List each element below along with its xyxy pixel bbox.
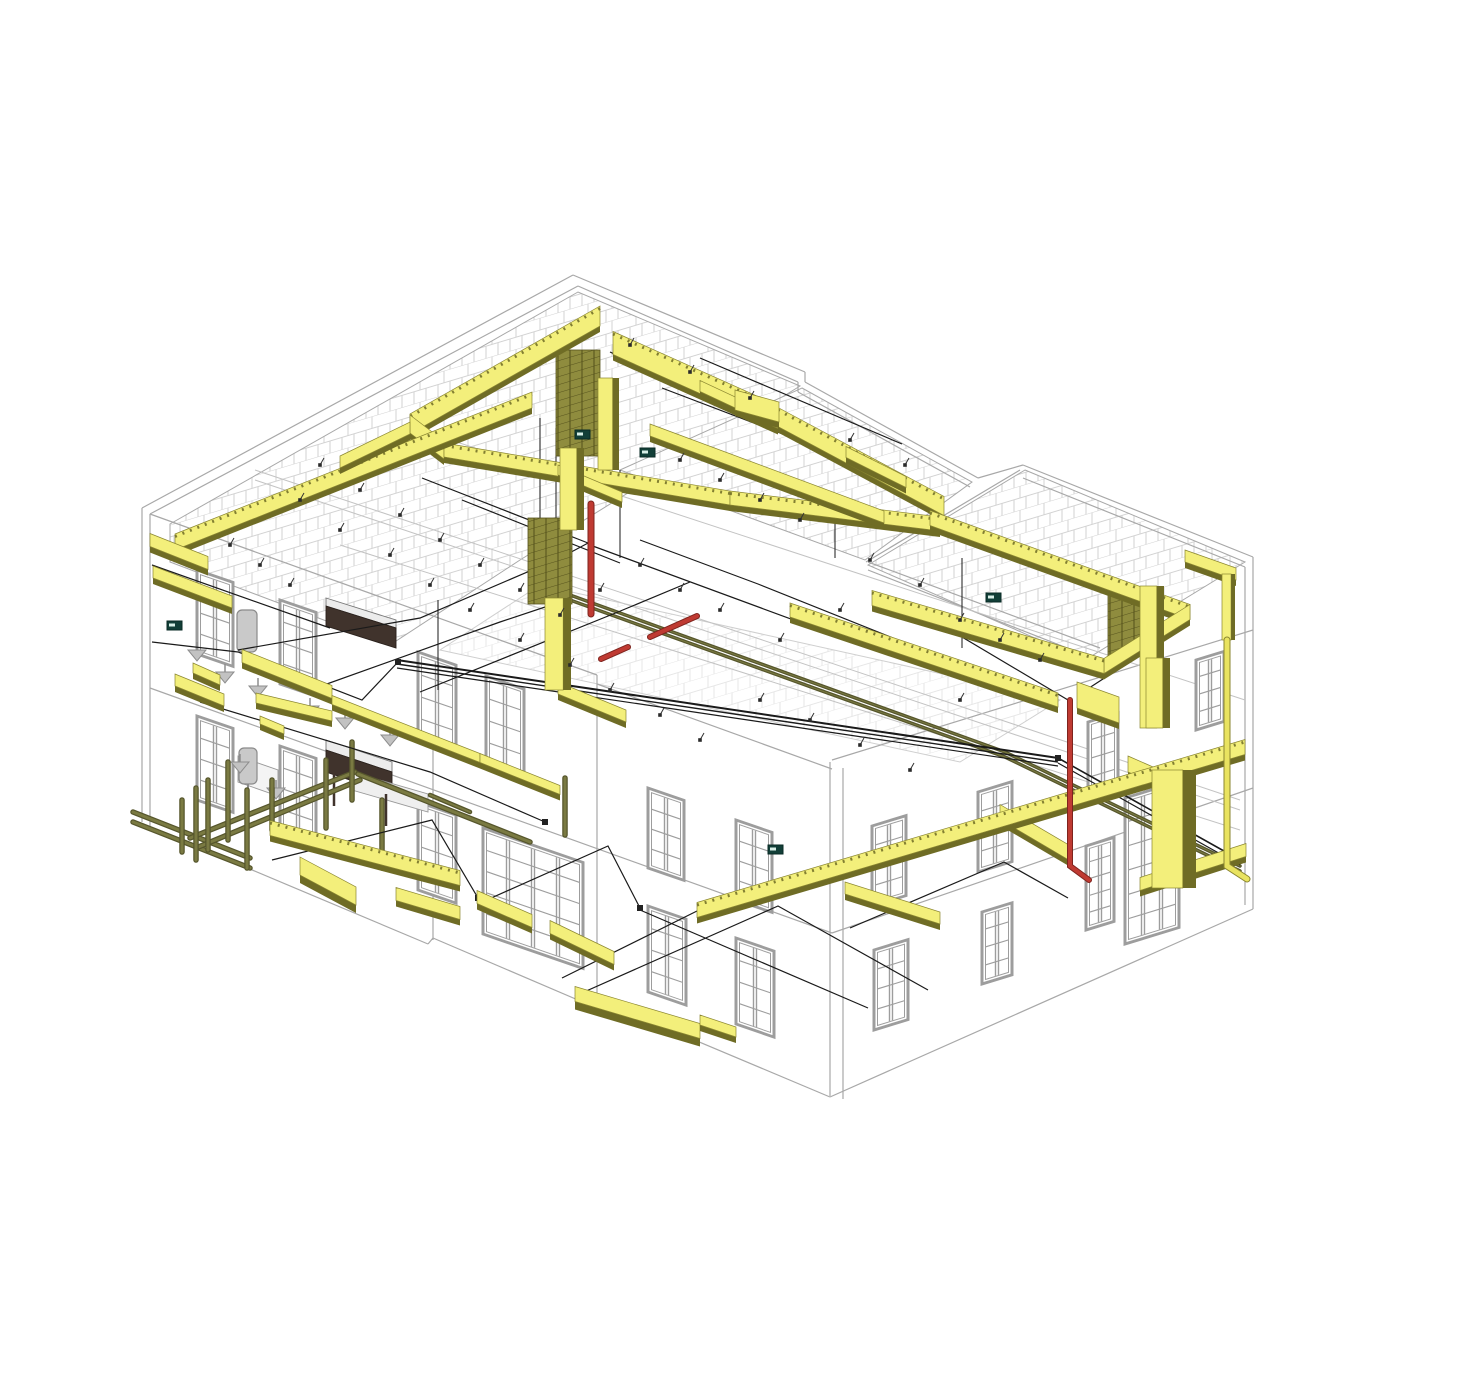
duct-riser-shadow	[1183, 770, 1196, 888]
ceiling-fixture	[908, 768, 912, 772]
ceiling-fixture	[298, 498, 302, 502]
ceiling-fixture	[848, 438, 852, 442]
ceiling-fixture	[958, 698, 962, 702]
window	[982, 903, 1012, 984]
ceiling-fixture	[838, 608, 842, 612]
duct-riser-shadow	[613, 378, 619, 470]
ceiling-fixture	[868, 558, 872, 562]
window	[874, 940, 908, 1030]
masonry-shaft	[528, 518, 572, 604]
ceiling-fixture	[658, 713, 662, 717]
duct-riser	[1146, 658, 1163, 728]
ceiling-fixture	[398, 513, 402, 517]
ceiling-fixture	[428, 583, 432, 587]
ceiling-fixture	[228, 543, 232, 547]
duct-riser	[1152, 770, 1183, 888]
ceiling-fixture	[518, 638, 522, 642]
ceiling-fixture	[678, 588, 682, 592]
ceiling-fixture	[608, 688, 612, 692]
bim-model-viewport[interactable]	[0, 0, 1480, 1383]
ceiling-fixture	[688, 370, 692, 374]
ceiling-fixture	[718, 478, 722, 482]
ceiling-fixture	[958, 618, 962, 622]
junction-box	[395, 659, 401, 665]
window	[1196, 651, 1224, 730]
ceiling-fixture	[518, 588, 522, 592]
ceiling-fixture	[478, 563, 482, 567]
ceiling-fixture	[258, 563, 262, 567]
ceiling-fixture	[858, 743, 862, 747]
window	[1086, 837, 1114, 930]
diffuser-funnel	[381, 735, 399, 746]
diffuser-funnel	[336, 718, 354, 729]
masonry-shaft	[556, 350, 600, 456]
ceiling-fixture	[778, 638, 782, 642]
ceiling-fixture	[358, 488, 362, 492]
ceiling-fixture	[598, 588, 602, 592]
duct-riser-shadow	[1163, 658, 1170, 728]
ceiling-fixture	[638, 563, 642, 567]
ceiling-fixture	[748, 396, 752, 400]
ceiling-fixture	[808, 718, 812, 722]
building-edge	[428, 938, 433, 944]
duct-riser-shadow	[1231, 574, 1235, 640]
duct-riser	[598, 378, 613, 470]
window	[736, 938, 774, 1037]
duct-riser	[560, 448, 577, 530]
wall-panel	[237, 610, 257, 652]
junction-box	[542, 819, 548, 825]
duct-riser	[1222, 574, 1231, 640]
duct-riser-shadow	[577, 448, 584, 530]
ceiling-fixture	[903, 463, 907, 467]
duct-riser	[545, 598, 563, 690]
ceiling-fixture	[558, 613, 562, 617]
junction-box	[637, 905, 643, 911]
ceiling-fixture	[718, 608, 722, 612]
ceiling-fixture	[918, 583, 922, 587]
ceiling-fixture	[628, 343, 632, 347]
junction-box	[1055, 755, 1061, 761]
ceiling-fixture	[798, 518, 802, 522]
service-pipe	[133, 822, 250, 868]
ceiling-fixture	[678, 458, 682, 462]
bim-3d-view[interactable]	[0, 0, 1480, 1383]
ceiling-fixture	[468, 608, 472, 612]
ceiling-fixture	[438, 538, 442, 542]
ceiling-fixture	[698, 738, 702, 742]
ceiling-fixture	[388, 553, 392, 557]
ceiling-fixture	[568, 663, 572, 667]
ceiling-fixture	[758, 698, 762, 702]
ceiling-fixture	[998, 638, 1002, 642]
ceiling-fixture	[318, 463, 322, 467]
ceiling-fixture	[338, 528, 342, 532]
ceiling-fixture	[758, 498, 762, 502]
duct-riser-shadow	[563, 598, 571, 690]
window	[648, 788, 684, 880]
ceiling-fixture	[288, 583, 292, 587]
ceiling-fixture	[1038, 658, 1042, 662]
